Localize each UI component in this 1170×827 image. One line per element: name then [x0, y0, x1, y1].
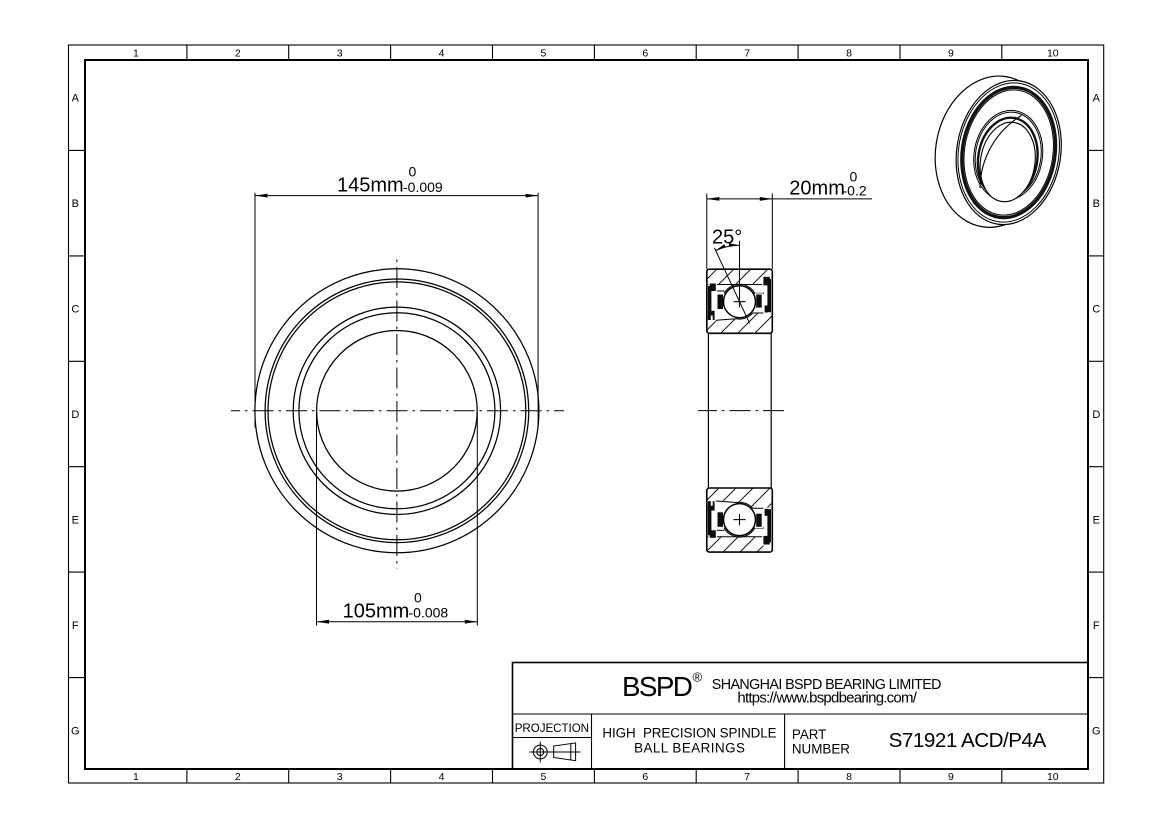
svg-text:F: F: [1093, 620, 1100, 632]
svg-text:-0.008: -0.008: [409, 605, 449, 621]
svg-text:20mm: 20mm: [789, 178, 845, 200]
svg-text:C: C: [1092, 304, 1100, 316]
svg-text:9: 9: [948, 48, 954, 60]
svg-text:D: D: [71, 409, 79, 421]
svg-text:4: 4: [439, 771, 445, 783]
svg-text:G: G: [71, 725, 80, 737]
svg-text:7: 7: [744, 48, 750, 60]
svg-text:C: C: [71, 304, 79, 316]
svg-text:B: B: [1093, 198, 1100, 210]
svg-text:1: 1: [133, 771, 139, 783]
svg-text:A: A: [72, 93, 80, 105]
svg-text:E: E: [72, 514, 79, 526]
svg-text:5: 5: [540, 771, 546, 783]
svg-text:5: 5: [540, 48, 546, 60]
svg-text:0: 0: [414, 590, 422, 606]
svg-text:4: 4: [439, 48, 445, 60]
svg-text:B: B: [72, 198, 79, 210]
svg-text:10: 10: [1047, 771, 1059, 783]
svg-text:NUMBER: NUMBER: [792, 742, 850, 757]
svg-text:D: D: [1092, 409, 1100, 421]
svg-text:10: 10: [1047, 48, 1059, 60]
svg-text:2: 2: [235, 48, 241, 60]
svg-text:3: 3: [337, 48, 343, 60]
svg-text:25°: 25°: [712, 227, 742, 249]
svg-text:G: G: [1092, 725, 1101, 737]
svg-text:105mm: 105mm: [343, 600, 410, 622]
svg-text:PROJECTION: PROJECTION: [515, 722, 589, 735]
svg-text:2: 2: [235, 771, 241, 783]
svg-text:6: 6: [642, 771, 648, 783]
svg-text:HIGH PRECISION SPINDLE: HIGH PRECISION SPINDLE: [602, 725, 776, 740]
svg-text:F: F: [72, 620, 79, 632]
svg-text:BALL BEARINGS: BALL BEARINGS: [634, 741, 745, 756]
svg-text:0: 0: [409, 164, 417, 180]
svg-text:BSPD: BSPD: [622, 671, 693, 702]
svg-text:145mm: 145mm: [337, 175, 404, 197]
svg-text:3: 3: [337, 771, 343, 783]
svg-text:9: 9: [948, 771, 954, 783]
svg-text:A: A: [1093, 93, 1101, 105]
svg-text:7: 7: [744, 771, 750, 783]
svg-text:6: 6: [642, 48, 648, 60]
svg-text:1: 1: [133, 48, 139, 60]
svg-text:-0.2: -0.2: [843, 182, 867, 198]
svg-text:E: E: [1093, 514, 1100, 526]
svg-text:8: 8: [846, 48, 852, 60]
svg-text:8: 8: [846, 771, 852, 783]
svg-text:https://www.bspdbearing.com/: https://www.bspdbearing.com/: [737, 690, 917, 707]
svg-text:®: ®: [693, 670, 703, 685]
svg-text:PART: PART: [792, 727, 826, 742]
svg-text:S71921 ACD/P4A: S71921 ACD/P4A: [889, 729, 1047, 752]
svg-text:-0.009: -0.009: [403, 179, 443, 195]
